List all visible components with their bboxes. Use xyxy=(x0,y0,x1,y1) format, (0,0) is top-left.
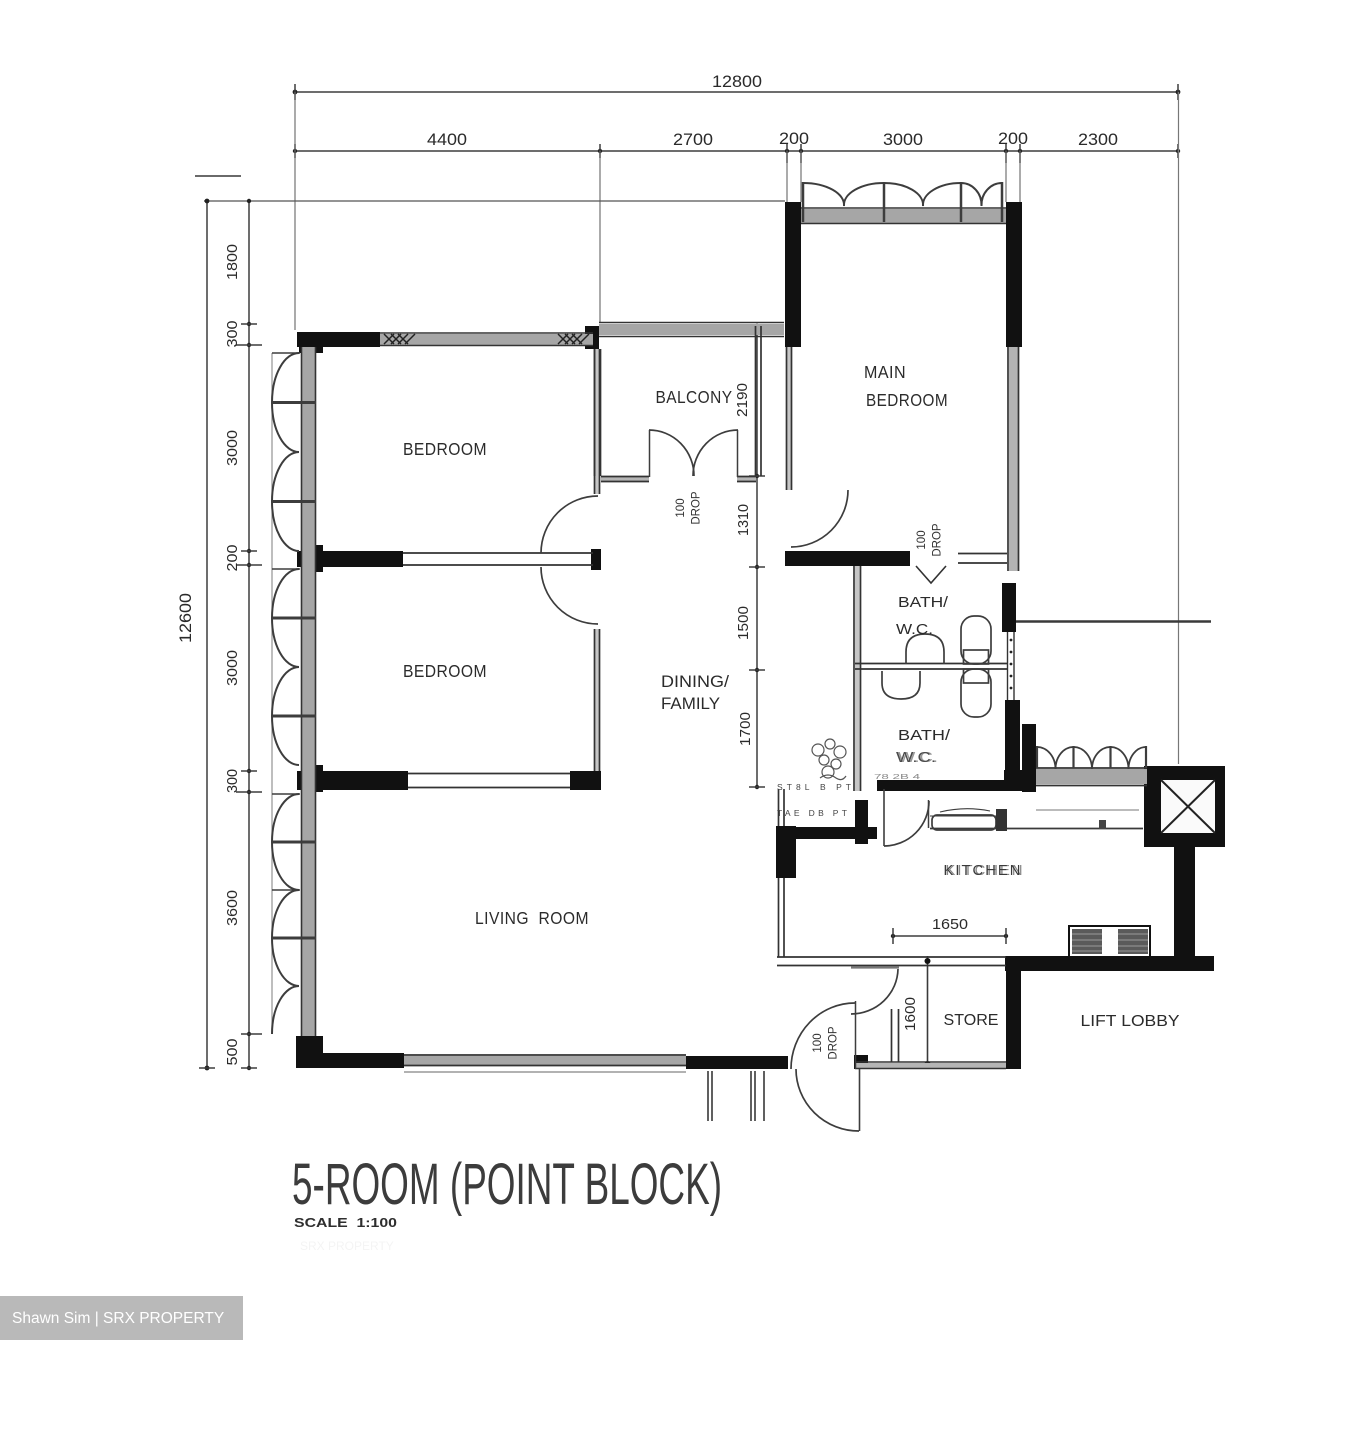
svg-text:1700: 1700 xyxy=(737,712,754,746)
svg-text:78 2B 4: 78 2B 4 xyxy=(874,772,920,781)
svg-text:BALCONY: BALCONY xyxy=(656,387,733,407)
svg-text:200: 200 xyxy=(779,130,809,148)
svg-text:BATH/: BATH/ xyxy=(898,595,949,611)
svg-text:1800: 1800 xyxy=(224,244,241,280)
svg-text:12600: 12600 xyxy=(177,593,195,643)
svg-text:3600: 3600 xyxy=(224,890,241,926)
svg-text:Shawn Sim | SRX PROPERTY: Shawn Sim | SRX PROPERTY xyxy=(12,1310,224,1327)
svg-text:BEDROOM: BEDROOM xyxy=(403,439,487,459)
svg-text:BATH/: BATH/ xyxy=(898,728,951,744)
svg-text:200: 200 xyxy=(224,545,241,572)
svg-text:100: 100 xyxy=(675,498,687,517)
svg-text:SRX PROPERTY: SRX PROPERTY xyxy=(300,1239,394,1253)
svg-text:FAMILY: FAMILY xyxy=(661,695,720,713)
svg-text:3000: 3000 xyxy=(224,650,241,686)
svg-text:BEDROOM: BEDROOM xyxy=(403,661,487,681)
svg-text:1600: 1600 xyxy=(902,997,919,1031)
svg-text:DROP: DROP xyxy=(691,491,703,525)
svg-text:1310: 1310 xyxy=(735,504,752,536)
svg-text:500: 500 xyxy=(224,1039,241,1066)
svg-text:300: 300 xyxy=(224,769,241,793)
svg-text:300: 300 xyxy=(224,321,241,348)
svg-text:DROP: DROP xyxy=(932,523,944,557)
svg-text:5-ROOM (POINT BLOCK): 5-ROOM (POINT BLOCK) xyxy=(292,1152,722,1217)
svg-text:100: 100 xyxy=(916,530,928,549)
svg-text:ST8L B PT: ST8L B PT xyxy=(777,782,851,792)
svg-text:DINING/: DINING/ xyxy=(661,673,729,691)
svg-text:SCALE 1:100: SCALE 1:100 xyxy=(294,1215,397,1230)
svg-text:BEDROOM: BEDROOM xyxy=(866,390,948,410)
svg-text:STORE: STORE xyxy=(944,1012,999,1029)
svg-text:3000: 3000 xyxy=(883,131,923,149)
svg-text:2300: 2300 xyxy=(1078,131,1118,149)
svg-text:LIVING ROOM: LIVING ROOM xyxy=(475,908,589,928)
svg-text:W.C.: W.C. xyxy=(896,622,933,638)
svg-text:DROP: DROP xyxy=(828,1026,840,1060)
svg-text:1650: 1650 xyxy=(932,916,968,933)
svg-text:2190: 2190 xyxy=(734,383,751,417)
svg-text:100: 100 xyxy=(812,1033,824,1052)
svg-text:4400: 4400 xyxy=(427,131,467,149)
svg-text:12800: 12800 xyxy=(712,73,762,91)
svg-text:1500: 1500 xyxy=(735,606,752,640)
svg-text:KITCHEN: KITCHEN xyxy=(944,863,1023,879)
svg-text:3000: 3000 xyxy=(224,430,241,466)
svg-text:2700: 2700 xyxy=(673,131,713,149)
svg-text:TAE DB PT: TAE DB PT xyxy=(777,808,847,818)
svg-text:200: 200 xyxy=(998,130,1028,148)
svg-text:W.C.: W.C. xyxy=(896,750,936,766)
svg-text:LIFT LOBBY: LIFT LOBBY xyxy=(1081,1013,1180,1030)
svg-text:MAIN: MAIN xyxy=(864,362,906,382)
